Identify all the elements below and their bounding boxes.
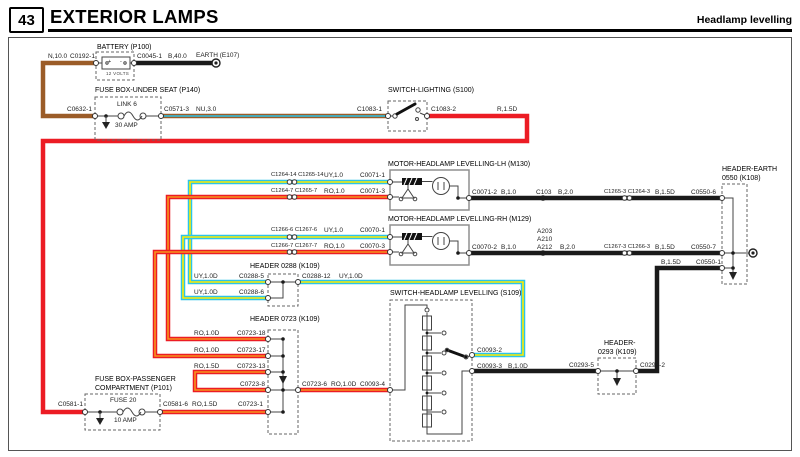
fusebox-passenger-title-1: FUSE BOX-PASSENGER xyxy=(95,376,176,384)
motor-rh-earth-pin: C0070-2 xyxy=(472,244,497,251)
switch-lighting-symbol xyxy=(388,104,427,121)
header-0293-title-1: HEADER- xyxy=(604,340,636,348)
motor-rh-signal-pin: C0070-1 xyxy=(360,227,385,234)
header-0288-out-wire: UY,1.0D xyxy=(339,273,363,280)
header-earth-0550-title-2: 0550 (K108) xyxy=(722,175,761,183)
fuse-link6-label: LINK 6 xyxy=(117,101,137,108)
fuse-20-label: FUSE 20 xyxy=(110,397,136,404)
header-0293-in-pin: C0293-5 xyxy=(569,362,594,369)
header-0288-bus xyxy=(268,280,298,298)
wire-header0293-to-earth-black xyxy=(636,268,722,371)
motor-lh-earth-dest: C0550-6 xyxy=(691,189,716,196)
battery-conn-in-label: C0192-1 xyxy=(70,53,95,60)
header-0723-title: HEADER 0723 (K109) xyxy=(250,316,320,324)
fusebox-underseat-wire-out: NU,3.0 xyxy=(196,106,216,113)
motor-lh-earth-pin: C0071-2 xyxy=(472,189,497,196)
switch-levelling-earth-pin: C0093-3 xyxy=(477,363,502,370)
header-0723-row2-wire: RO,1.0D xyxy=(194,347,219,354)
fusebox-passenger-title-2: COMPARTMENT (P101) xyxy=(95,385,172,393)
header-earth-0550-title-1: HEADER-EARTH xyxy=(722,166,777,174)
motor-rh-earth-wire1: B,1.0 xyxy=(501,244,516,251)
battery-wire-in-label: N,10.0 xyxy=(48,53,67,60)
switch-lighting-conn-in: C1083-1 xyxy=(357,106,382,113)
header-0288-out-pin: C0288-12 xyxy=(302,273,331,280)
motor-lh-title: MOTOR-HEADLAMP LEVELLING-LH (M130) xyxy=(388,161,530,169)
header-0723-row2-pin: C0723-17 xyxy=(237,347,266,354)
earth-symbol-0550 xyxy=(749,249,757,257)
header-0288-row2-pin: C0288-6 xyxy=(239,289,264,296)
header-0723-bus xyxy=(268,337,298,414)
battery-title: BATTERY (P100) xyxy=(97,44,151,52)
header-earth-0550-bus xyxy=(722,198,750,280)
motor-rh-box xyxy=(390,225,469,265)
switch-levelling-symbol xyxy=(390,305,472,434)
motor-rh-earth-conns: C1267-3 C1266-3 xyxy=(604,244,650,250)
header-0293-out-wire: B,1.5D xyxy=(661,259,681,266)
wiring-diagram-page: 43 EXTERIOR LAMPS Headlamp levelling xyxy=(0,0,800,457)
switch-levelling-title: SWITCH-HEADLAMP LEVELLING (S109) xyxy=(390,290,521,298)
battery-plus: + xyxy=(108,59,111,65)
motor-lh-earth-wire3: B,1.5D xyxy=(655,189,675,196)
fuse-link6-amp: 30 AMP xyxy=(115,122,138,129)
motor-rh-signal-conns: C1266-6 C1267-6 xyxy=(271,227,317,233)
header-0293-title-2: 0293 (K109) xyxy=(598,349,637,357)
header-0723-row1-pin: C0723-18 xyxy=(237,330,266,337)
fusebox-passenger-conn-in: C0581-1 xyxy=(58,401,83,408)
motor-rh-supply-wire: RO,1.0 xyxy=(324,243,345,250)
fusebox-underseat-title: FUSE BOX-UNDER SEAT (P140) xyxy=(95,87,200,95)
header-0723-row1-wire: RO,1.0D xyxy=(194,330,219,337)
switch-levelling-signal-pin: C0093-2 xyxy=(477,347,502,354)
battery-wire-out-label: B,40.0 xyxy=(168,53,187,60)
header-0723-out-dest: C0093-4 xyxy=(360,381,385,388)
fusebox-passenger-out-dest: C0723-1 xyxy=(238,401,263,408)
fusebox-underseat-conn-out: C0571-3 xyxy=(164,106,189,113)
header-0293-out-pin: C0293-2 xyxy=(640,362,665,369)
header-0288-row1-wire: UY,1.0D xyxy=(194,273,218,280)
header-0723-out-pin: C0723-6 xyxy=(302,381,327,388)
fusebox-passenger-conn-out: C0581-6 xyxy=(163,401,188,408)
motor-rh-supply-pin: C0070-3 xyxy=(360,243,385,250)
motor-lh-signal-pin: C0071-1 xyxy=(360,172,385,179)
splice-label-a203: A203 xyxy=(537,228,552,235)
header-0723-row3-pin: C0723-13 xyxy=(237,363,266,370)
battery-minus: - xyxy=(120,59,122,65)
motor-lh-splice-label: C103 xyxy=(536,189,552,196)
switch-lighting-box xyxy=(388,101,427,131)
earth-symbol-e107 xyxy=(212,59,220,67)
motor-lh-signal-wire: UY,1.0 xyxy=(324,172,343,179)
battery-earth-label: EARTH (E107) xyxy=(196,52,239,59)
motor-rh-title: MOTOR-HEADLAMP LEVELLING-RH (M129) xyxy=(388,216,531,224)
wires xyxy=(43,63,722,412)
motor-lh-earth-wire1: B,1.0 xyxy=(501,189,516,196)
fuse-20-amp: 10 AMP xyxy=(114,417,137,424)
header-0723-jumper-pin: C0723-8 xyxy=(240,381,265,388)
switch-lighting-conn-out: C1083-2 xyxy=(431,106,456,113)
motor-rh-earth-wire2: B,2.0 xyxy=(560,244,575,251)
battery-symbol xyxy=(96,57,134,69)
motor-lh-signal-conns: C1264-14 C1265-14 xyxy=(271,172,324,178)
battery-volts-label: 12 VOLTS xyxy=(106,72,129,77)
fusebox-passenger-wire-out: RO,1.5D xyxy=(192,401,217,408)
splice-label-a210: A210 xyxy=(537,236,552,243)
header-0288-title: HEADER 0288 (K109) xyxy=(250,263,320,271)
switch-lighting-wire-out: R,1.5D xyxy=(497,106,517,113)
fusebox-underseat-conn-in: C0632-1 xyxy=(67,106,92,113)
header-0293-out-dest: C0550-1 xyxy=(696,259,721,266)
battery-conn-out-label: C0045-1 xyxy=(137,53,162,60)
motor-lh-supply-pin: C0071-3 xyxy=(360,188,385,195)
motor-lh-earth-wire2: B,2.0 xyxy=(558,189,573,196)
header-earth-0550-box xyxy=(722,184,747,284)
switch-lighting-title: SWITCH-LIGHTING (S100) xyxy=(388,87,474,95)
header-0723-out-wire: RO,1.0D xyxy=(331,381,356,388)
motor-lh-supply-conns: C1264-7 C1265-7 xyxy=(271,188,317,194)
motor-rh-supply-conns: C1266-7 C1267-7 xyxy=(271,243,317,249)
header-0288-row2-wire: UY,1.0D xyxy=(194,289,218,296)
motor-lh-box xyxy=(390,170,469,210)
motor-rh-earth-wire3: B,1.5D xyxy=(655,244,675,251)
motor-rh-signal-wire: UY,1.0 xyxy=(324,227,343,234)
motor-rh-earth-dest: C0550-7 xyxy=(691,244,716,251)
splice-label-a212: A212 xyxy=(537,244,552,251)
header-0723-row3-wire: RO,1.5D xyxy=(194,363,219,370)
motor-lh-supply-wire: RO,1.0 xyxy=(324,188,345,195)
switch-levelling-earth-wire: B,1.0D xyxy=(508,363,528,370)
header-0293-bus xyxy=(598,369,636,386)
motor-lh-earth-conns: C1265-3 C1264-3 xyxy=(604,189,650,195)
header-0288-row1-pin: C0288-5 xyxy=(239,273,264,280)
